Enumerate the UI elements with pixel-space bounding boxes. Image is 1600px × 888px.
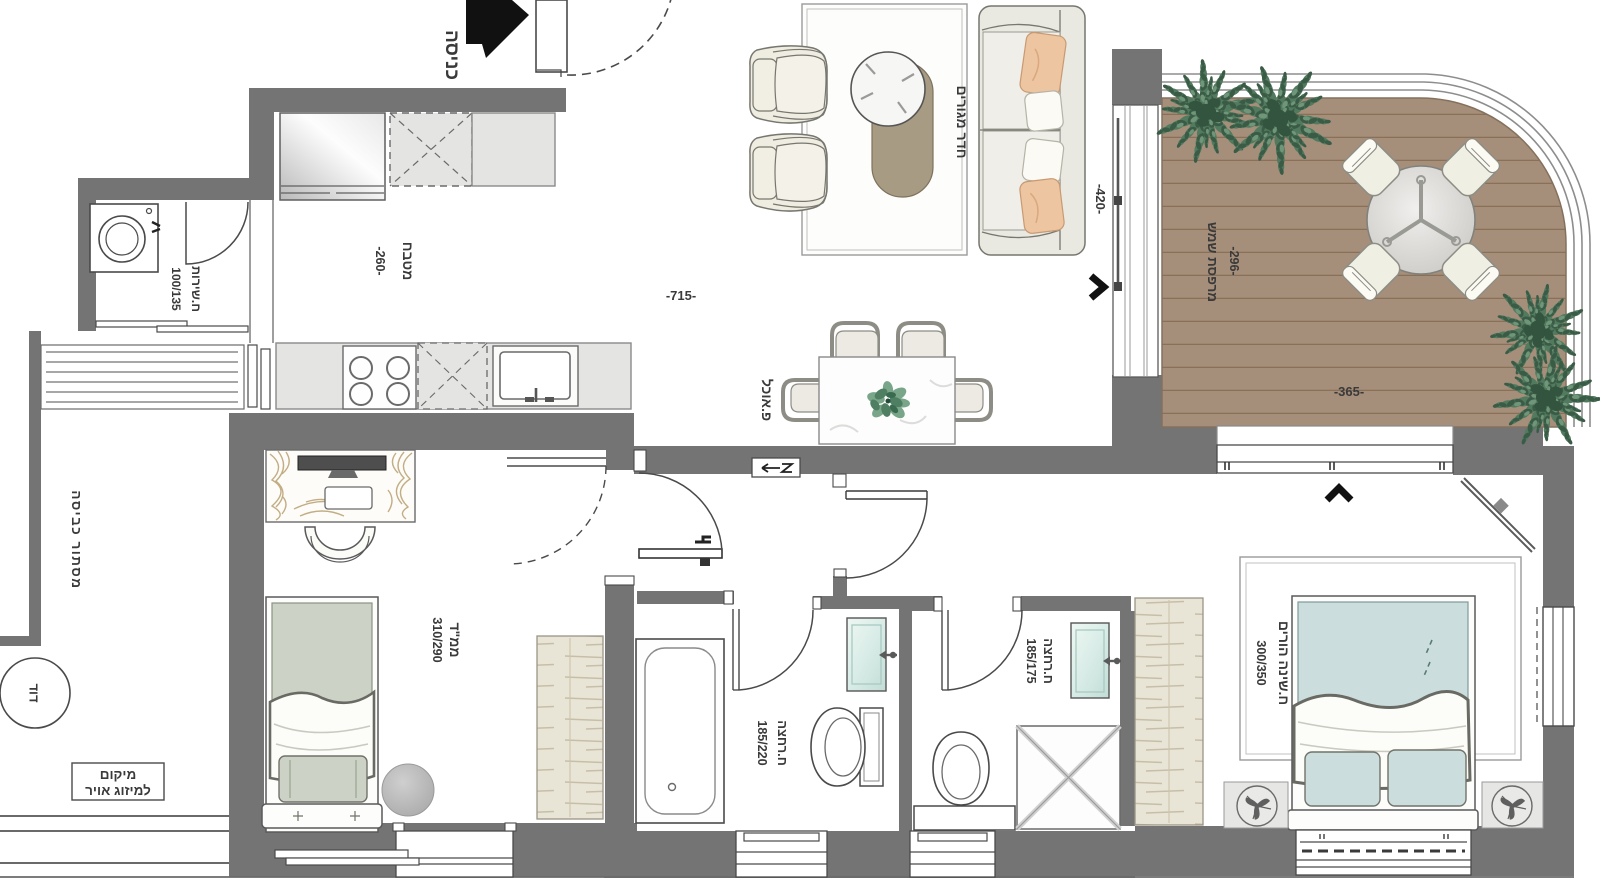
svg-text:כניסה: כניסה: [441, 30, 462, 80]
svg-text:מסתור כביסה: מסתור כביסה: [69, 490, 84, 589]
svg-text:-260-: -260-: [373, 246, 387, 275]
svg-text:ח.שינה הורים: ח.שינה הורים: [1276, 621, 1292, 705]
svg-text:-420-: -420-: [1093, 184, 1108, 214]
svg-text:-365-: -365-: [1334, 384, 1364, 399]
svg-text:185/220: 185/220: [755, 720, 769, 765]
svg-text:חדר מגורים: חדר מגורים: [954, 85, 970, 158]
svg-text:דוד: דוד: [27, 683, 42, 702]
svg-text:מיקום: מיקום: [100, 767, 137, 782]
svg-text:-715-: -715-: [666, 288, 696, 303]
svg-text:100/135: 100/135: [169, 267, 183, 311]
svg-text:-296-: -296-: [1227, 246, 1241, 275]
svg-text:ח.רחצה: ח.רחצה: [1041, 638, 1056, 684]
svg-text:ממ"ד: ממ"ד: [447, 622, 463, 657]
svg-text:למיזוג אויר: למיזוג אויר: [85, 783, 151, 798]
svg-text:מרפסת שמש: מרפסת שמש: [1205, 222, 1220, 302]
svg-text:מטבח: מטבח: [400, 242, 416, 281]
svg-text:ח.שירות: ח.שירות: [189, 266, 203, 312]
svg-text:185/175: 185/175: [1024, 638, 1038, 683]
svg-text:310/290: 310/290: [430, 617, 444, 662]
svg-text:300/350: 300/350: [1254, 640, 1268, 685]
svg-text:ח.רחצה: ח.רחצה: [775, 720, 790, 766]
svg-text:פ.אוכל: פ.אוכל: [759, 379, 775, 421]
